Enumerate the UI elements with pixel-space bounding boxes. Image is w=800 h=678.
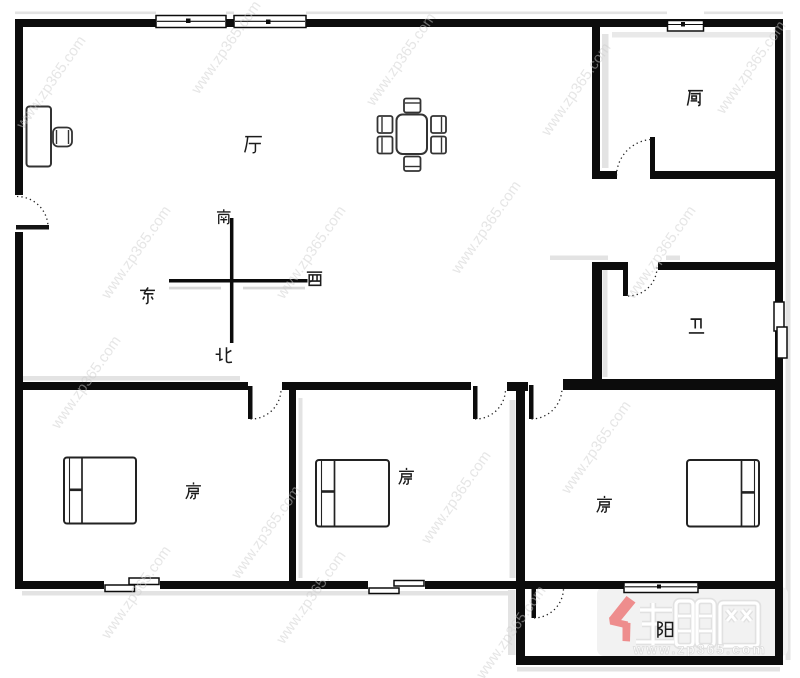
svg-text:www.zp365.com: www.zp365.com <box>632 641 767 657</box>
